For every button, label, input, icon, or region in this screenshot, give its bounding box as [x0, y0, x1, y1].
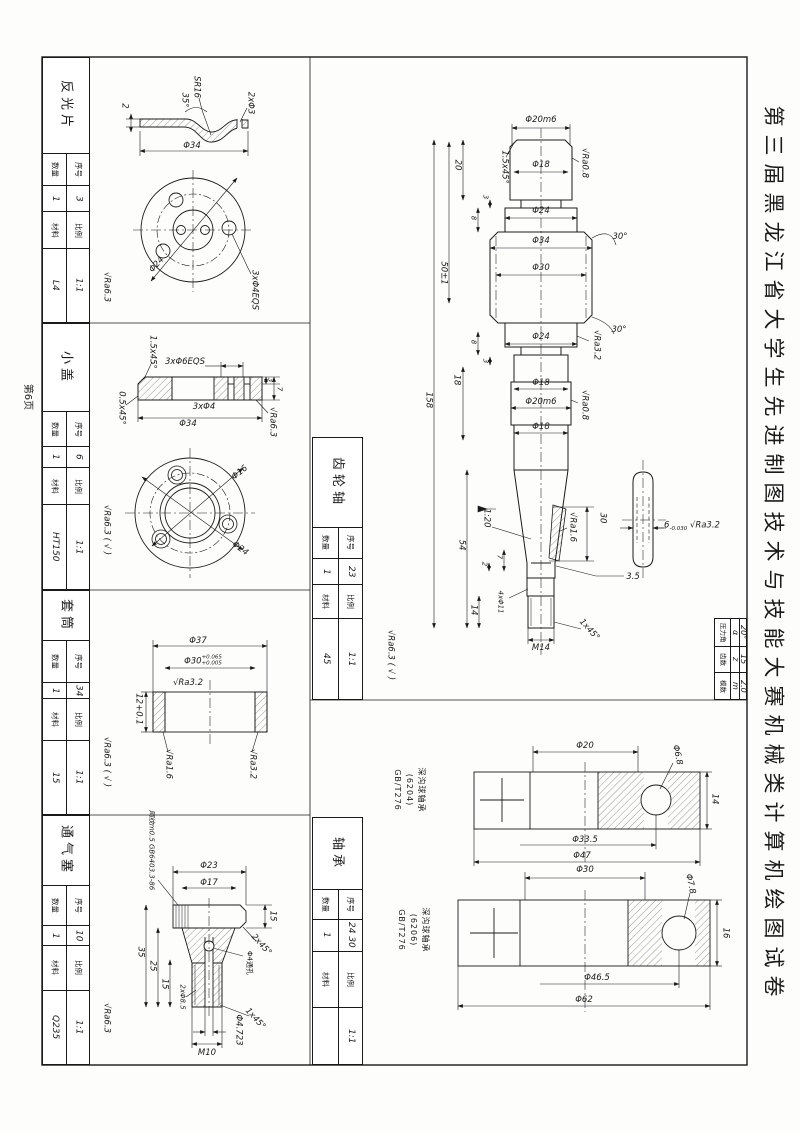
titleblock-gear-shaft: 齿轮轴 数量 序号 1 23 材料 比例 45 1:1 [312, 437, 363, 700]
keyway-dim-label: 6-0.030 √Ra3.2 [664, 521, 720, 532]
dim-label: 0.5x45° [117, 391, 126, 425]
dim-label: 3xΦ4EQS [250, 270, 259, 310]
dim-label: 8 [470, 216, 477, 220]
taper-label: 1:20 [482, 508, 491, 527]
dim-label: Φ18 [532, 161, 550, 170]
value-xuhao: 3 [74, 196, 83, 202]
label-bili: 比例 [347, 972, 355, 987]
surface-finish-note: √Ra6.3 ( √ ) [102, 505, 111, 555]
value-shuliang: 1 [321, 569, 330, 575]
label-shuliang: 数量 [322, 535, 330, 550]
label-xuhao: 序号 [74, 422, 82, 437]
dim-label: 158 [424, 392, 433, 408]
dim-label: 54 [457, 540, 466, 551]
label-cailiao: 材料 [322, 972, 330, 987]
dim-label: Φ30 [576, 866, 594, 875]
gear-param-label: 模数 [719, 680, 726, 693]
bearing-spec-label: (6206) [409, 914, 417, 947]
value-xuhao: 6 [74, 454, 83, 460]
gear-param-value: 20° [739, 625, 746, 639]
gear-param-label: 齿数 [719, 653, 726, 666]
surface-finish-note: √Ra6.3 [102, 1003, 111, 1033]
titleblock-bearing: 轴承 数量 序号 1 24 30 材料 比例 1:1 [312, 817, 363, 1065]
dim-label: 3 [482, 195, 489, 199]
dim-label: 50±1 [439, 261, 448, 284]
value-shuliang: 1 [321, 932, 330, 938]
surface-finish-label: √Ra0.8 [580, 148, 589, 178]
dim-label: 20 [453, 160, 462, 171]
dim-label: 7 [496, 555, 503, 559]
value-bili: 1:1 [74, 540, 83, 554]
value-cailiao: 45 [321, 653, 330, 664]
dim-label: Φ62 [575, 996, 593, 1005]
dim-label: 3.5 [626, 573, 640, 582]
surface-finish-note: √Ra6.3 [102, 272, 111, 302]
dim-label: 14 [710, 794, 719, 805]
value-shuliang: 1 [50, 454, 59, 460]
dim-label: Φ18 [532, 379, 550, 388]
drawing-sheet: 第6页 第三届黑龙江省大学生先进制图技术与技能大赛机械类计算机绘图试卷 反光片 … [0, 0, 800, 1132]
surface-finish-label: √Ra0.8 [580, 390, 589, 420]
label-shuliang: 数量 [51, 654, 59, 669]
label-shuliang: 数量 [51, 162, 59, 177]
dim-label: Φ34 [532, 237, 550, 246]
gear-param-symbol: m [731, 682, 739, 690]
dim-label: 18 [452, 375, 461, 386]
value-bili: 1:1 [346, 1029, 355, 1043]
dim-label: 4xΦ11 [497, 590, 504, 613]
part-name: 反光片 [60, 80, 73, 131]
value-cailiao: L4 [50, 280, 59, 291]
dim-label: Φ20m6 [525, 116, 556, 125]
surface-finish-label: √Ra1.6 [568, 512, 577, 542]
dim-label: Φ30+0.065+0.005 [184, 656, 222, 667]
dim-label: Φ30 [532, 264, 550, 273]
knurl-note: 网纹m0.5 GB6403.3-86 [148, 810, 155, 890]
value-shuliang: 1 [50, 688, 59, 694]
dim-label: Φ24 [532, 333, 550, 342]
bearing-std-label: GB/T276 [393, 769, 401, 811]
label-cailiao: 材料 [322, 594, 330, 609]
surface-finish-label: √Ra3.2 [173, 679, 203, 688]
titleblock-cover: 小盖 数量 序号 1 6 材料 比例 HT150 1:1 [42, 323, 90, 590]
dim-label: Φ34 [183, 142, 201, 151]
value-bili: 1:1 [74, 770, 83, 784]
label-bili: 比例 [74, 712, 82, 727]
dim-label: 3 [482, 359, 489, 363]
dim-label: Φ24 [532, 207, 550, 216]
dim-label: M14 [532, 644, 550, 653]
dim-label: 2 [481, 562, 488, 566]
value-cailiao: Q235 [50, 1015, 59, 1039]
dim-label: 3xΦ6EQS [165, 358, 205, 367]
value-xuhao: 24 30 [346, 922, 355, 948]
gear-param-symbol: α [731, 630, 739, 635]
dim-label: 8 [470, 340, 477, 344]
dim-label: Φ37 [189, 637, 207, 646]
dim-label: 3 [267, 378, 274, 382]
label-cailiao: 材料 [51, 479, 59, 494]
gear-param-symbol: z [731, 657, 739, 661]
dim-label: 30 [598, 513, 607, 524]
part-name: 通气塞 [60, 825, 73, 876]
part-name: 套筒 [60, 599, 73, 633]
label-bili: 比例 [347, 594, 355, 609]
gear-param-value: 15 [739, 654, 746, 664]
dim-label: 7 [276, 387, 283, 391]
gear-parameter-table: 压力角 α 20° 齿数 z 15 模数 m 2.0 [714, 618, 747, 700]
value-xuhao: 23 [346, 566, 355, 577]
label-xuhao: 序号 [74, 162, 82, 177]
sheet-title: 第三届黑龙江省大学生先进制图技术与技能大赛机械类计算机绘图试卷 [763, 106, 784, 1005]
surface-finish-label: √Ra3.2 [592, 330, 601, 360]
value-bili: 1:1 [74, 1020, 83, 1034]
dim-label: Φ34 [179, 420, 197, 429]
dim-label: 35° [180, 92, 189, 107]
dim-label: Φ18 [532, 423, 550, 432]
label-cailiao: 材料 [51, 960, 59, 975]
part-name: 轴承 [331, 837, 344, 871]
part-name: 齿轮轴 [331, 457, 344, 508]
dim-label: 1.5x45° [148, 335, 157, 369]
titleblock-vent-plug: 通气塞 数量 序号 1 10 材料 比例 Q235 1:1 [42, 815, 90, 1065]
drawing-linework [0, 0, 800, 1132]
bearing-spec-label: (6204) [405, 774, 413, 807]
surface-finish-note: √Ra6.3 ( √ ) [102, 737, 111, 787]
surface-finish-label: √Ra6.3 [268, 407, 277, 437]
dim-label: 1.5x45° [500, 150, 509, 184]
label-shuliang: 数量 [51, 422, 59, 437]
dim-label: Φ47 [573, 852, 591, 861]
dim-label: Φ23 [200, 862, 218, 871]
dim-label: Φ20 [576, 742, 594, 751]
dim-label: 12+0.1 [134, 693, 143, 724]
label-bili: 比例 [74, 223, 82, 238]
dim-label: 25 [148, 961, 157, 972]
dim-label: 35 [136, 947, 145, 958]
dim-label: 3xΦ4 [193, 403, 216, 412]
dim-label: Φ46.5 [584, 974, 610, 983]
label-xuhao: 序号 [347, 897, 355, 912]
page-number-note: 第6页 [22, 384, 32, 410]
bearing-std-label: GB/T276 [397, 909, 405, 951]
bearing-type-label: 深沟球轴承 [421, 908, 429, 953]
dim-label: SR16 [192, 76, 201, 98]
dim-label: Φ4.723 [234, 1014, 243, 1045]
part-name: 小盖 [60, 351, 73, 385]
value-bili: 1:1 [74, 278, 83, 292]
titleblock-reflector: 反光片 数量 序号 1 3 材料 比例 L4 1:1 [42, 57, 90, 323]
surface-finish-label: √Ra1.6 [164, 749, 173, 779]
dim-label: Φ4通孔 [246, 951, 253, 975]
dim-label: M10 [198, 1049, 216, 1058]
label-shuliang: 数量 [51, 898, 59, 913]
gear-param-label: 压力角 [719, 623, 726, 643]
dim-label: Φ17 [200, 879, 218, 888]
label-cailiao: 材料 [51, 712, 59, 727]
dim-label: 15 [160, 979, 169, 990]
dim-label: 16 [721, 928, 730, 939]
label-xuhao: 序号 [347, 535, 355, 550]
surface-finish-note: √Ra6.3 ( √ ) [386, 630, 395, 680]
dim-label: 30° [611, 326, 626, 335]
dim-label: 15 [268, 911, 277, 922]
label-bili: 比例 [74, 479, 82, 494]
value-bili: 1:1 [346, 652, 355, 666]
dim-label: 2xΦ8.5 [179, 984, 186, 1009]
dim-label: 30° [612, 233, 627, 242]
dim-label: 2 [120, 103, 129, 108]
value-cailiao: HT150 [50, 532, 59, 561]
label-xuhao: 序号 [74, 654, 82, 669]
value-shuliang: 1 [50, 196, 59, 202]
value-shuliang: 1 [50, 933, 59, 939]
surface-finish-label: √Ra3.2 [248, 749, 257, 779]
label-cailiao: 材料 [51, 223, 59, 238]
dim-label: 14 [469, 605, 478, 616]
dim-label: Φ20m6 [525, 398, 556, 407]
dim-label: 2xΦ3 [246, 92, 255, 115]
value-cailiao: 15 [50, 772, 59, 783]
label-bili: 比例 [74, 960, 82, 975]
value-xuhao: 10 [74, 930, 83, 941]
value-xuhao: 34 [74, 685, 83, 696]
label-shuliang: 数量 [322, 897, 330, 912]
titleblock-sleeve: 套筒 数量 序号 1 34 材料 比例 15 1:1 [42, 590, 90, 815]
dim-label: Φ33.5 [572, 836, 598, 845]
label-xuhao: 序号 [74, 898, 82, 913]
gear-param-value: 2.0 [739, 680, 746, 693]
bearing-type-label: 深沟球轴承 [417, 768, 425, 813]
